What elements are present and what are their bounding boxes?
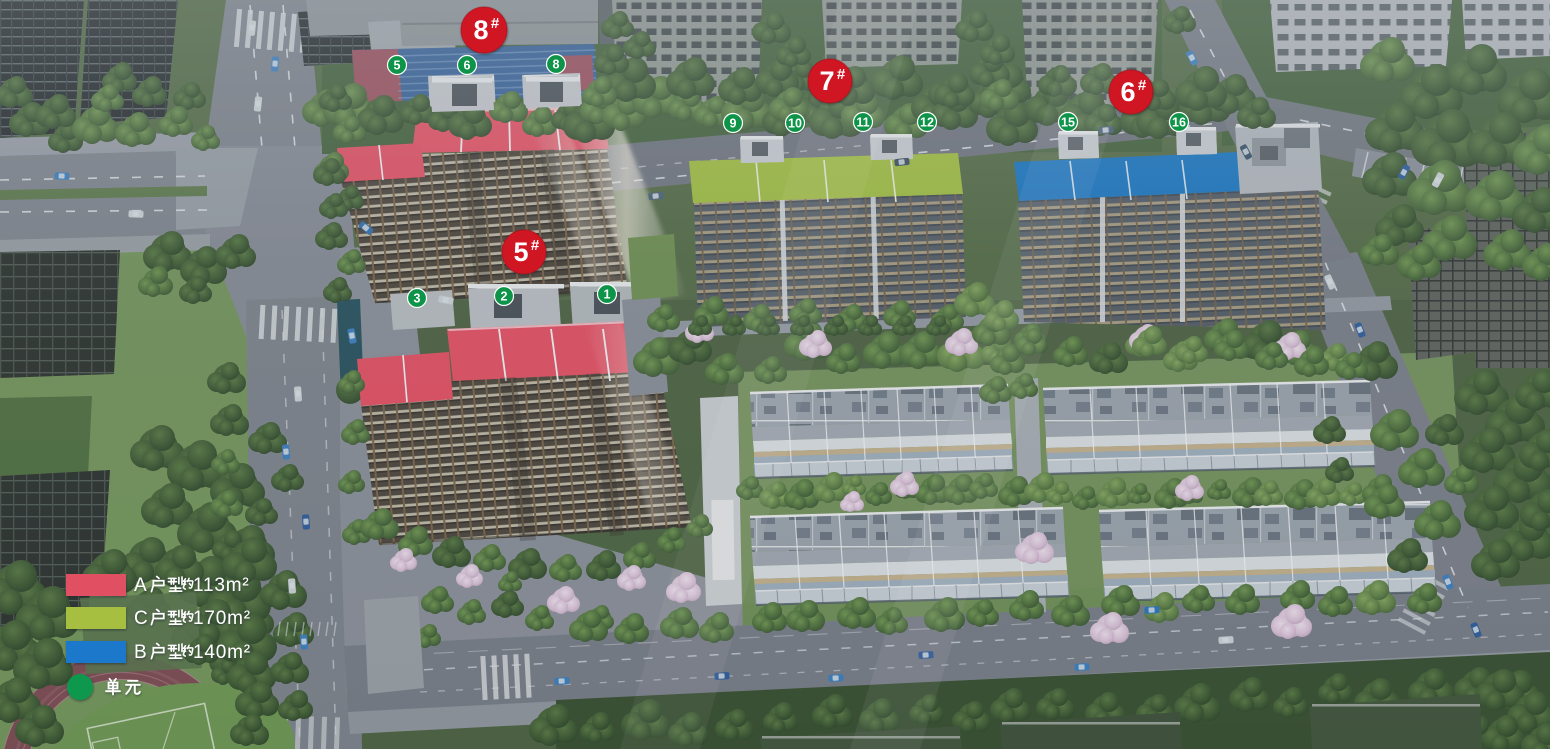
svg-text:170m²: 170m² — [193, 608, 251, 629]
svg-text:5: 5 — [513, 237, 528, 267]
svg-text:3: 3 — [414, 292, 421, 306]
svg-text:C: C — [134, 608, 148, 629]
svg-text:8: 8 — [473, 15, 488, 45]
svg-text:8: 8 — [553, 58, 560, 72]
svg-text:A: A — [134, 575, 147, 596]
svg-text:2: 2 — [501, 290, 508, 304]
svg-text:16: 16 — [1172, 116, 1186, 130]
svg-text:6: 6 — [1120, 77, 1135, 107]
svg-text:#: # — [837, 66, 846, 83]
svg-text:#: # — [1138, 77, 1147, 94]
svg-text:#: # — [491, 15, 500, 32]
svg-text:15: 15 — [1061, 116, 1075, 130]
svg-text:5: 5 — [394, 59, 401, 73]
svg-text:12: 12 — [920, 116, 934, 130]
svg-text:B: B — [134, 642, 147, 663]
svg-text:140m²: 140m² — [193, 642, 251, 663]
svg-text:9: 9 — [730, 117, 737, 131]
svg-text:1: 1 — [604, 288, 611, 302]
svg-text:11: 11 — [856, 116, 869, 130]
svg-text:7: 7 — [819, 66, 834, 96]
svg-text:#: # — [531, 237, 540, 254]
svg-text:10: 10 — [788, 117, 802, 131]
svg-text:6: 6 — [464, 59, 471, 73]
svg-text:113m²: 113m² — [193, 575, 249, 596]
